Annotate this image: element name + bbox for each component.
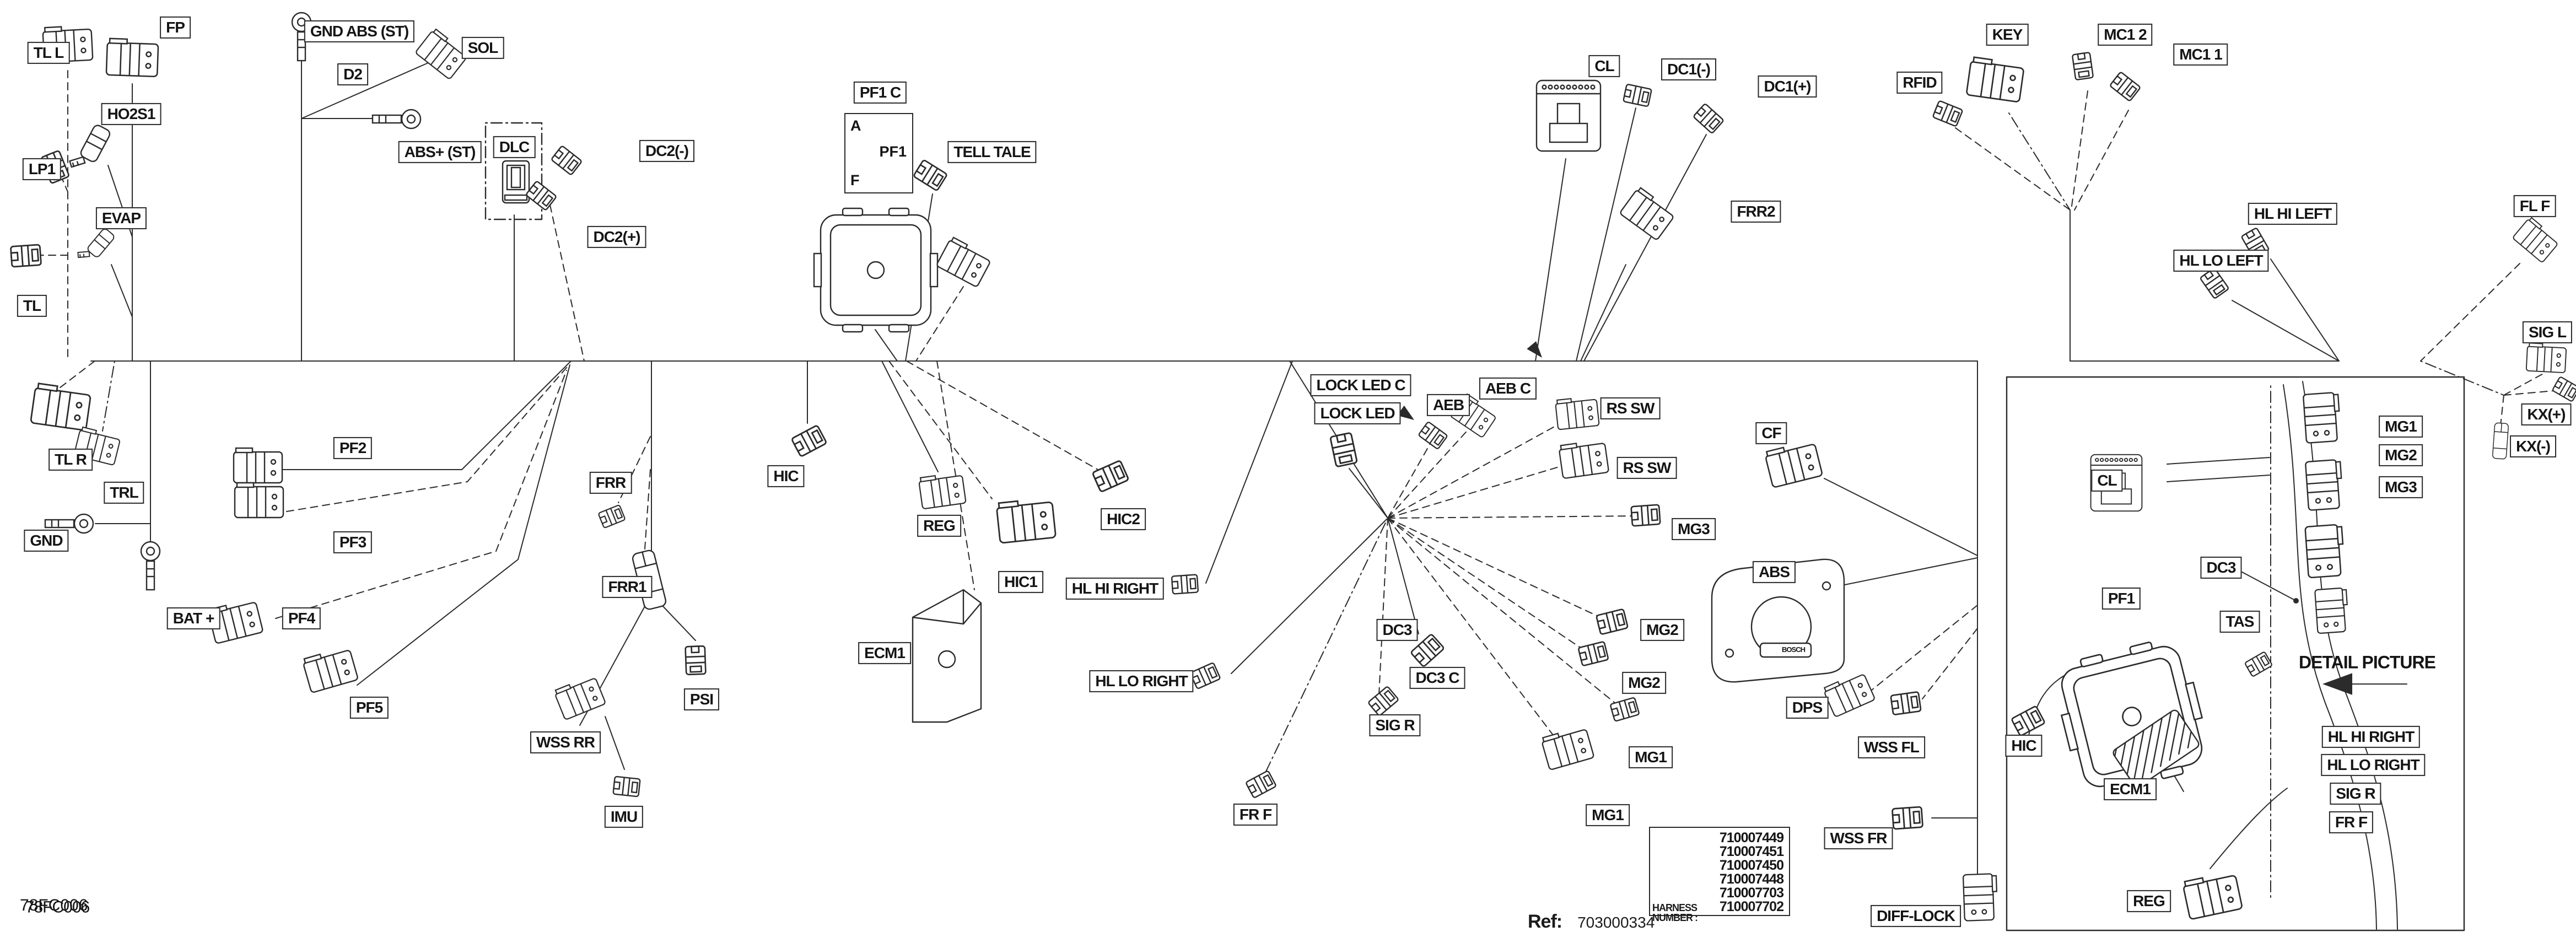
part-number-list: 7100074497100074517100074507100074487100… (1652, 831, 1783, 900)
part-numbers-box: 7100074497100074517100074507100074487100… (1649, 827, 1790, 916)
connector-label: WSS RR (530, 731, 601, 753)
connector-label: HL LO RIGHT (1089, 670, 1193, 692)
connector-label: HO2S1 (101, 103, 161, 125)
connector-label: DC1(+) (1758, 76, 1817, 98)
connector-label: IMU (605, 806, 643, 828)
connector-label: FP (160, 17, 191, 39)
connector-label: HL HI RIGHT (1066, 578, 1164, 600)
harness-number-value: 710007702 (1720, 900, 1783, 914)
ref-number: 703000334 (1577, 915, 1655, 930)
connector-label: REG (917, 515, 961, 537)
connector-label: DIFF-LOCK (1871, 905, 1961, 927)
connector-label: SIG L (2523, 321, 2572, 343)
connector-label: ECM1 (2104, 778, 2157, 800)
connector-label: FRR2 (1731, 201, 1781, 223)
pf1-pin-a: A (850, 119, 861, 133)
part-number: 710007449 (1652, 831, 1783, 845)
pf1-name: PF1 (879, 144, 907, 159)
connector-label: KX(-) (2510, 435, 2556, 457)
connector-label: SOL (462, 37, 504, 59)
connector-label: LOCK LED (1314, 402, 1400, 424)
connector-label: D2 (337, 63, 368, 85)
connector-label: SIG R (1369, 714, 1420, 736)
connector-label: EVAP (96, 207, 147, 229)
connector-label: TRL (104, 482, 144, 504)
connector-label: DC2(-) (639, 140, 694, 162)
connector-label: WSS FL (1858, 736, 1925, 758)
connector-label: DC3 C (1409, 667, 1465, 689)
part-number: 710007451 (1652, 845, 1783, 859)
connector-label: HL LO LEFT (2173, 250, 2268, 272)
labels-layer: TL LFPGND ABS (ST)D2SOLHO2S1ABS+ (ST)DLC… (0, 0, 2576, 937)
connector-label: FL F (2514, 195, 2556, 217)
connector-label: HIC (2005, 735, 2042, 757)
part-number: 710007703 (1652, 886, 1783, 900)
connector-label: TAS (2220, 611, 2260, 633)
connector-label: RFID (1896, 72, 1942, 94)
connector-label: PSI (684, 688, 719, 710)
connector-label: AEB (1427, 394, 1470, 416)
connector-label: CL (1588, 55, 1620, 77)
connector-label: MG1 (1586, 804, 1630, 826)
connector-label: REG (2127, 890, 2171, 912)
part-number: 710007448 (1652, 873, 1783, 886)
connector-label: ECM1 (858, 642, 911, 664)
connector-label: LP1 (23, 158, 61, 180)
connector-label: DC3 (2200, 557, 2241, 579)
connector-label: MG2 (1640, 619, 1684, 641)
connector-label: CF (1755, 422, 1787, 444)
connector-label: MG1 (1629, 746, 1673, 768)
connector-label: LOCK LED C (1310, 374, 1411, 396)
connector-label: TL L (28, 42, 70, 64)
connector-label: PF1 (2102, 588, 2141, 610)
connector-label: FRR1 (602, 576, 652, 598)
part-number: 710007450 (1652, 859, 1783, 873)
connector-label: MG3 (1672, 518, 1716, 540)
connector-label: KEY (1986, 24, 2029, 46)
connector-label: ABS (1753, 561, 1796, 583)
connector-label: HIC (767, 465, 804, 487)
connector-label: MC1 2 (2098, 24, 2152, 46)
ref-label: Ref: (1528, 912, 1562, 931)
connector-label: MG3 (2379, 476, 2423, 498)
connector-label: PF1 C (854, 82, 907, 104)
connector-label: FR F (2329, 811, 2373, 833)
connector-label: HL HI RIGHT (2322, 726, 2420, 748)
diagram-text: BOSCH (1782, 646, 1805, 654)
connector-label: FRR (590, 472, 632, 494)
connector-label: PF2 (333, 437, 372, 459)
connector-label: RS SW (1600, 397, 1661, 419)
connector-label: AEB C (1479, 378, 1537, 400)
connector-label: FR F (1233, 804, 1278, 826)
connector-label: RS SW (1617, 457, 1677, 479)
connector-label: DPS (1786, 697, 1829, 719)
connector-label: MG2 (1622, 672, 1666, 694)
connector-label: MC1 1 (2173, 44, 2228, 66)
connector-label: TL R (48, 449, 93, 471)
connector-label: PF3 (333, 531, 372, 553)
pf1-pin-f: F (850, 173, 860, 188)
pf1-pinout-box: A F PF1 (844, 113, 913, 193)
connector-label: DC2(+) (587, 226, 646, 248)
connector-label: MG1 (2379, 416, 2423, 438)
connector-label: CL (2091, 470, 2122, 492)
connector-label: DC1(-) (1661, 58, 1716, 80)
connector-label: BAT + (167, 607, 220, 629)
connector-label: MG2 (2379, 444, 2423, 466)
connector-label: HIC1 (998, 571, 1043, 593)
connector-label: TELL TALE (947, 141, 1036, 163)
connector-label: WSS FR (1824, 827, 1893, 849)
diagram-text: DETAIL PICTURE (2299, 653, 2435, 672)
connector-label: HIC2 (1101, 508, 1146, 530)
connector-label: ABS+ (ST) (398, 141, 482, 163)
connector-label: HL HI LEFT (2248, 203, 2337, 225)
connector-label: GND ABS (ST) (304, 20, 414, 42)
connector-label: TL (17, 295, 47, 317)
connector-label: GND (24, 530, 68, 552)
connector-label: DLC (493, 136, 536, 158)
connector-label: PF4 (282, 607, 321, 629)
connector-label: HL LO RIGHT (2321, 754, 2425, 776)
wiring-diagram-canvas: TL LFPGND ABS (ST)D2SOLHO2S1ABS+ (ST)DLC… (0, 0, 2576, 937)
connector-label: KX(+) (2521, 403, 2572, 426)
connector-label: SIG R (2330, 783, 2381, 805)
harness-number-label: HARNESS NUMBER : (1652, 903, 1716, 923)
harness-number-row: HARNESS NUMBER : 710007702 (1652, 900, 1783, 923)
connector-label: DC3 (1376, 619, 1418, 641)
ref-line: Ref: 703000334 (1528, 912, 1655, 931)
diagram-code: 78FC006 (20, 897, 88, 914)
connector-label: PF5 (350, 697, 389, 719)
